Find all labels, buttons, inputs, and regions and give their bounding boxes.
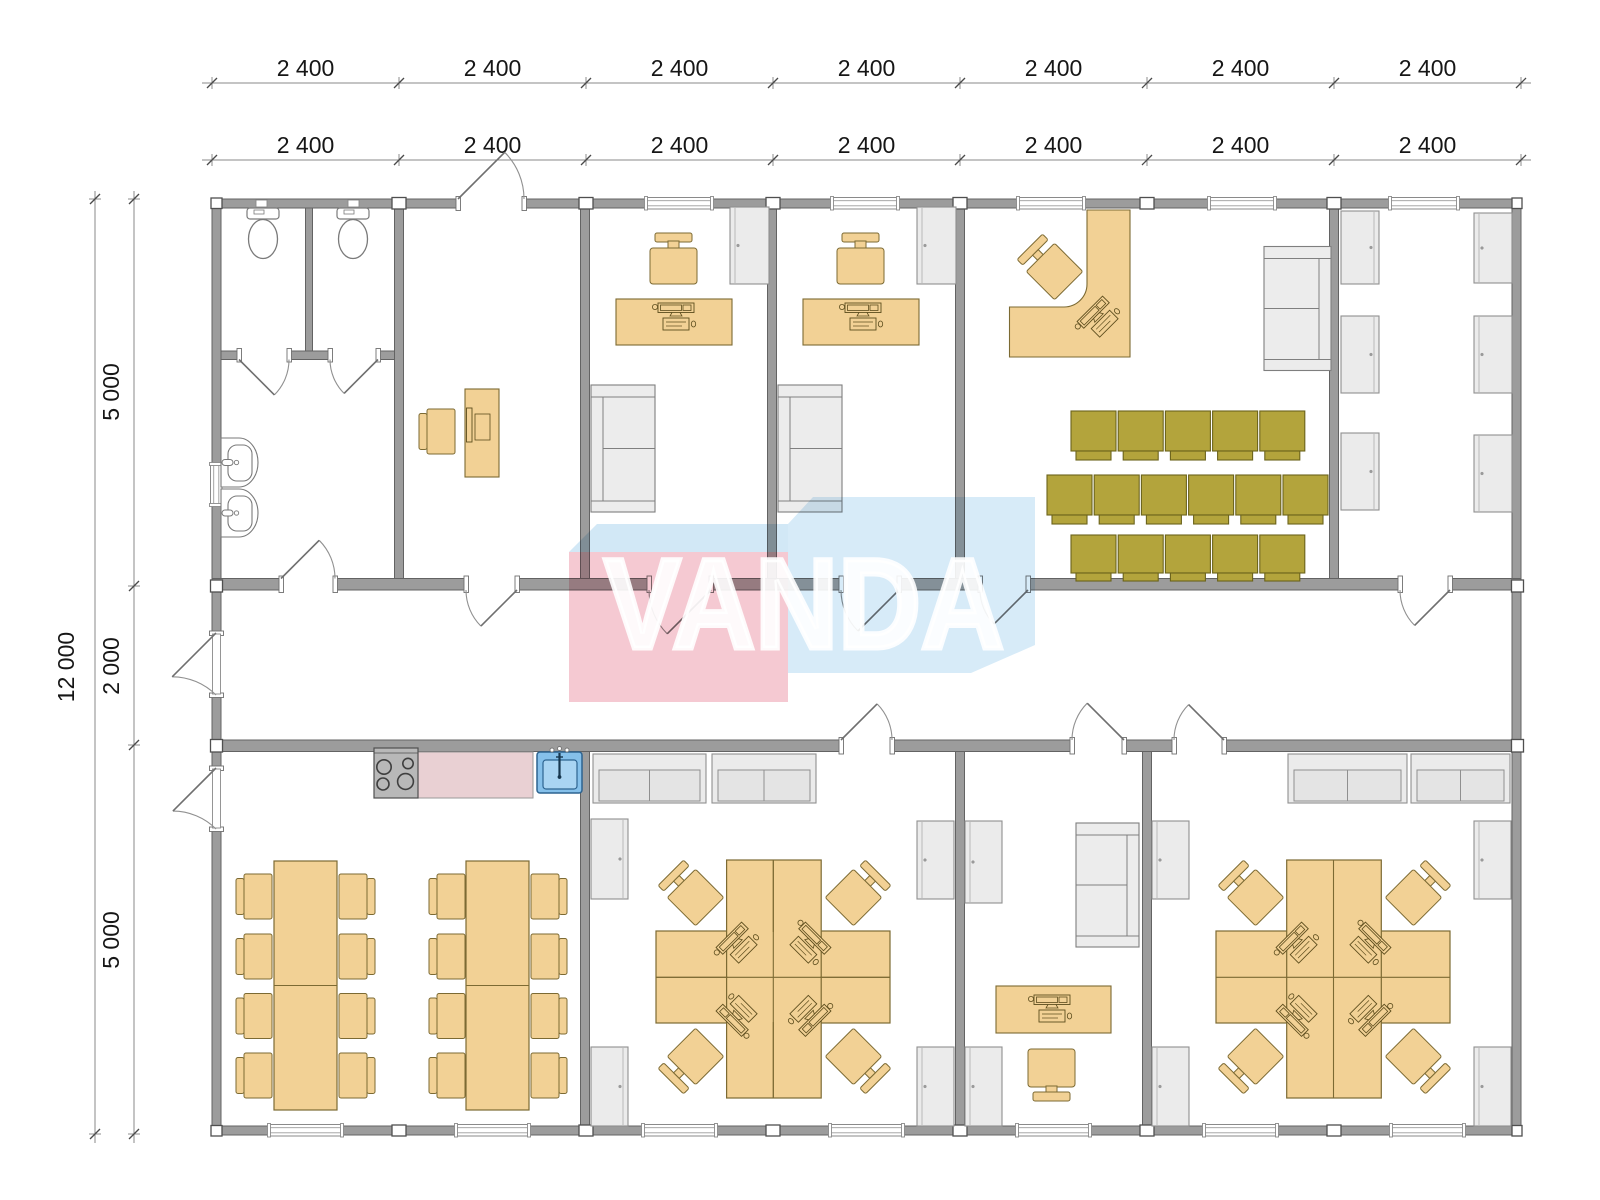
svg-text:2 400: 2 400	[464, 132, 522, 158]
svg-text:2 400: 2 400	[1399, 55, 1457, 81]
svg-text:5 000: 5 000	[98, 911, 124, 969]
svg-text:2 400: 2 400	[464, 55, 522, 81]
svg-text:2 400: 2 400	[1212, 132, 1270, 158]
svg-text:2 400: 2 400	[1399, 132, 1457, 158]
svg-text:2 400: 2 400	[838, 55, 896, 81]
svg-text:2 400: 2 400	[277, 55, 335, 81]
svg-text:2 400: 2 400	[1025, 132, 1083, 158]
svg-text:12 000: 12 000	[53, 632, 79, 702]
svg-text:VANDA: VANDA	[604, 533, 1004, 676]
svg-text:2 400: 2 400	[1212, 55, 1270, 81]
svg-text:2 400: 2 400	[1025, 55, 1083, 81]
svg-text:2 400: 2 400	[838, 132, 896, 158]
svg-text:2 400: 2 400	[651, 55, 709, 81]
svg-text:5 000: 5 000	[98, 363, 124, 421]
svg-text:2 000: 2 000	[98, 637, 124, 695]
svg-text:2 400: 2 400	[651, 132, 709, 158]
svg-text:2 400: 2 400	[277, 132, 335, 158]
